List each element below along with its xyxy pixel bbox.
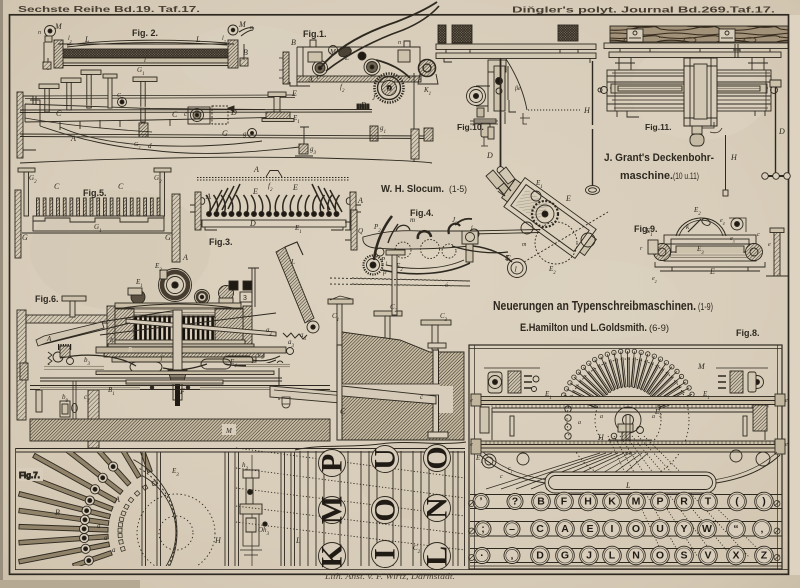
svg-text:A: A	[357, 196, 363, 205]
svg-text:e: e	[785, 442, 788, 448]
svg-text:c: c	[500, 474, 503, 480]
svg-text:Fig.1.: Fig.1.	[303, 29, 327, 39]
svg-text:H: H	[384, 86, 391, 94]
svg-text:L: L	[421, 546, 454, 566]
svg-text:M: M	[238, 20, 247, 29]
svg-text:Fig. 2.: Fig. 2.	[132, 28, 158, 38]
svg-text:Q: Q	[358, 227, 363, 235]
svg-text:X: X	[732, 550, 739, 562]
svg-text:B: B	[291, 38, 296, 47]
svg-text:Diňgler's polyt. Journal Bd.26: Diňgler's polyt. Journal Bd.269.Taf.17.	[512, 6, 775, 15]
svg-text:“: “	[733, 523, 738, 535]
svg-text:3: 3	[243, 295, 247, 302]
svg-text:E: E	[292, 183, 298, 192]
svg-text:A: A	[561, 523, 569, 535]
svg-text:a: a	[112, 546, 116, 554]
svg-text:E: E	[586, 523, 593, 535]
svg-text:L: L	[344, 54, 349, 62]
svg-text:M: M	[316, 496, 349, 524]
svg-text:B: B	[243, 48, 248, 57]
svg-text:M: M	[54, 22, 63, 31]
svg-text:E: E	[252, 187, 258, 196]
svg-text:n,: n,	[250, 25, 255, 31]
svg-text:L: L	[195, 35, 201, 44]
svg-text:a: a	[97, 522, 101, 530]
svg-text:I: I	[369, 548, 402, 560]
svg-text:Fig.7.: Fig.7.	[19, 471, 40, 480]
svg-text:(: (	[735, 496, 739, 508]
svg-text:F: F	[179, 387, 185, 396]
svg-text:Fig.3.: Fig.3.	[209, 237, 233, 247]
svg-text:(10 u.11): (10 u.11)	[673, 171, 699, 182]
svg-text:b: b	[110, 336, 114, 344]
svg-text:N: N	[421, 497, 454, 519]
svg-text:C: C	[340, 407, 346, 416]
svg-text:k: k	[172, 284, 175, 290]
svg-text:;: ;	[481, 523, 485, 535]
svg-text:J: J	[586, 550, 592, 562]
svg-text:M: M	[697, 362, 706, 371]
svg-text:Fig.8.: Fig.8.	[736, 328, 760, 338]
svg-text:H: H	[584, 496, 592, 508]
svg-text:N: N	[632, 550, 640, 562]
svg-text:A: A	[307, 75, 313, 84]
svg-text:T: T	[705, 496, 712, 508]
svg-text:K: K	[608, 496, 616, 508]
svg-text:Fig.11.: Fig.11.	[645, 122, 671, 132]
svg-text:): )	[762, 496, 766, 508]
svg-text:ƒ: ƒ	[160, 354, 164, 362]
svg-text:n: n	[38, 30, 41, 36]
svg-text:m: m	[410, 216, 415, 224]
svg-text:E.Hamilton und L.Goldsmith.: E.Hamilton und L.Goldsmith.	[520, 322, 647, 334]
svg-text:Y: Y	[680, 523, 687, 535]
svg-text:d: d	[148, 142, 152, 150]
svg-text:Z: Z	[761, 550, 768, 562]
svg-text:?: ?	[512, 496, 518, 508]
svg-text:R: R	[680, 496, 688, 508]
svg-text:a: a	[600, 414, 603, 420]
svg-text:D: D	[486, 151, 493, 160]
svg-text:A: A	[46, 335, 52, 343]
svg-text:U: U	[369, 448, 402, 470]
svg-text:C: C	[172, 110, 178, 119]
svg-text:e: e	[470, 398, 473, 404]
svg-text:(6-9): (6-9)	[649, 323, 669, 334]
svg-text:e: e	[470, 442, 473, 448]
svg-text:e: e	[768, 242, 771, 248]
svg-text:P: P	[316, 454, 349, 472]
svg-text:O: O	[421, 446, 454, 469]
svg-text:M: M	[225, 427, 233, 435]
svg-text:Neuerungen an Typenschreibmasc: Neuerungen an Typenschreibmaschinen.	[493, 299, 696, 313]
svg-text:a: a	[104, 534, 108, 542]
svg-text:L: L	[625, 481, 631, 490]
svg-text:A: A	[253, 165, 259, 174]
svg-text:m: m	[522, 242, 527, 248]
svg-text:D: D	[249, 219, 256, 228]
svg-text:E: E	[709, 267, 715, 276]
svg-text:W. H. Slocum.: W. H. Slocum.	[381, 184, 444, 195]
svg-text:I: I	[611, 523, 614, 535]
svg-text:A: A	[182, 253, 188, 262]
svg-text:‚: ‚	[761, 523, 764, 535]
svg-text:G: G	[165, 233, 171, 242]
svg-text:·: ·	[480, 550, 484, 562]
svg-text:C: C	[118, 182, 124, 191]
svg-text:a: a	[652, 414, 655, 420]
svg-text:B: B	[537, 496, 545, 508]
svg-text:C: C	[536, 523, 544, 535]
svg-text:Fig.10.: Fig.10.	[457, 122, 484, 132]
svg-text:J. Grant's Deckenbohr-: J. Grant's Deckenbohr-	[604, 152, 714, 164]
svg-text:O: O	[656, 550, 664, 562]
svg-text:’: ’	[480, 496, 483, 508]
svg-text:G: G	[222, 129, 228, 138]
svg-text:C: C	[54, 182, 60, 191]
svg-text:E: E	[565, 194, 571, 203]
svg-text:Sechste Reihe Bd.19. Taf.17.: Sechste Reihe Bd.19. Taf.17.	[18, 5, 200, 14]
svg-text:G: G	[22, 233, 28, 242]
svg-text:(1-5): (1-5)	[449, 184, 467, 194]
svg-text:P: P	[656, 496, 663, 508]
svg-text:F: F	[561, 496, 568, 508]
svg-text:B: B	[55, 508, 60, 517]
svg-text:βe: βe	[514, 86, 521, 92]
svg-text:j: j	[470, 225, 473, 231]
svg-text:O: O	[369, 498, 402, 521]
svg-text:c: c	[757, 232, 760, 238]
svg-text:V: V	[704, 550, 711, 562]
svg-text:K: K	[316, 544, 349, 568]
svg-text:–: –	[509, 523, 515, 535]
svg-text:B: B	[128, 346, 133, 354]
svg-text:L: L	[84, 35, 90, 44]
svg-text:n: n	[398, 40, 401, 46]
svg-text:l: l	[144, 56, 146, 64]
svg-text:O: O	[632, 523, 640, 535]
svg-text:G: G	[561, 550, 569, 562]
svg-text:p: p	[382, 268, 387, 276]
svg-text:‚: ‚	[511, 550, 514, 562]
svg-text:S: S	[680, 550, 687, 562]
svg-text:M: M	[329, 48, 337, 56]
svg-text:L: L	[609, 550, 616, 562]
svg-text:a: a	[578, 420, 581, 426]
svg-text:g: g	[243, 130, 247, 138]
svg-text:Lith. Anst. v. F. Wirtz, Darms: Lith. Anst. v. F. Wirtz, Darmstadt.	[324, 571, 455, 581]
svg-text:W: W	[702, 523, 712, 535]
svg-text:maschine.: maschine.	[620, 170, 673, 182]
svg-text:M: M	[632, 496, 641, 508]
svg-text:E: E	[505, 254, 511, 263]
svg-text:D: D	[778, 127, 785, 136]
svg-text:e: e	[785, 398, 788, 404]
svg-text:A: A	[205, 192, 211, 201]
svg-text:E: E	[291, 89, 297, 98]
svg-text:L: L	[290, 258, 295, 266]
svg-text:U: U	[656, 523, 664, 535]
svg-text:D: D	[536, 550, 544, 562]
svg-text:Fig.5.: Fig.5.	[83, 188, 107, 198]
svg-text:A: A	[70, 134, 76, 143]
svg-text:Fig.6.: Fig.6.	[35, 294, 59, 304]
svg-text:(1-9): (1-9)	[698, 301, 713, 313]
svg-text:A: A	[114, 495, 120, 504]
